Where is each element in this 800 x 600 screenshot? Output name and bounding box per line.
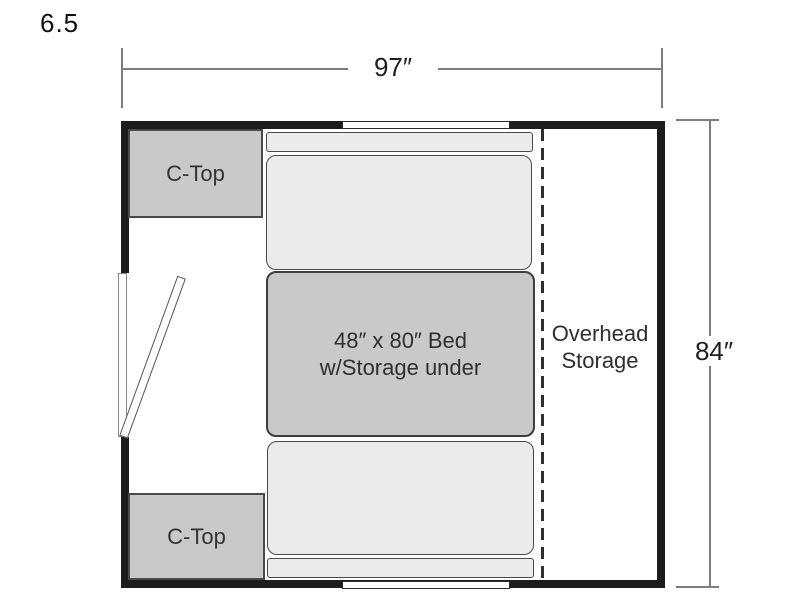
door-jamb — [118, 273, 127, 437]
height-extension-line-bottom — [676, 586, 719, 588]
floorplan-canvas: 6.5 97″ 84″ C-Top C-Top 48″ x 80″ Bed w/… — [0, 0, 800, 600]
overhead-storage-label-line1: Overhead — [543, 320, 657, 347]
height-dimension-label: 84″ — [686, 336, 742, 366]
width-extension-line-left — [121, 48, 123, 108]
cushion-strip-bottom — [267, 558, 534, 578]
counter-top-lower: C-Top — [128, 493, 265, 580]
height-extension-line-top — [676, 119, 719, 121]
width-dimension-label: 97″ — [348, 52, 438, 82]
width-extension-line-right — [661, 48, 663, 108]
overhead-storage-label: Overhead Storage — [543, 320, 657, 374]
bed-label-line2: w/Storage under — [320, 354, 481, 381]
counter-top-lower-label: C-Top — [167, 524, 226, 550]
bed-label-line1: 48″ x 80″ Bed — [334, 327, 467, 354]
model-label: 6.5 — [40, 8, 79, 39]
cushion-strip-top — [266, 132, 533, 152]
top-window — [342, 121, 510, 129]
counter-top-upper-label: C-Top — [166, 161, 225, 187]
overhead-storage-label-line2: Storage — [543, 347, 657, 374]
bottom-window — [342, 581, 510, 589]
bed: 48″ x 80″ Bed w/Storage under — [266, 271, 535, 437]
counter-top-upper: C-Top — [128, 129, 263, 218]
seat-cushion-bottom — [267, 441, 534, 555]
seat-cushion-top — [266, 155, 532, 270]
